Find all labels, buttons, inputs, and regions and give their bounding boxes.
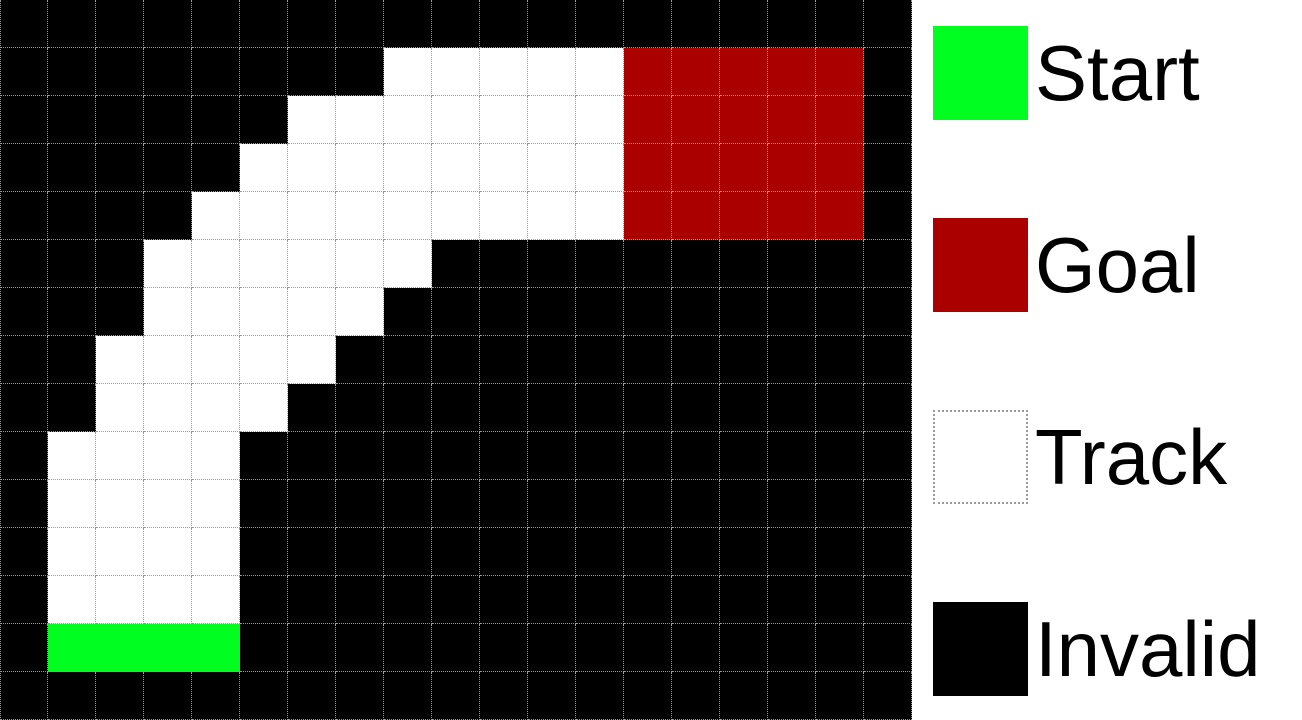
- grid-cell-invalid: [384, 288, 432, 336]
- grid-cell-invalid: [288, 384, 336, 432]
- grid-cell-invalid: [864, 192, 912, 240]
- grid-cell-invalid: [816, 288, 864, 336]
- grid-cell-invalid: [48, 0, 96, 48]
- grid-cell-invalid: [96, 0, 144, 48]
- grid-cell-invalid: [672, 672, 720, 720]
- grid-cell-goal: [816, 192, 864, 240]
- grid-cell-invalid: [240, 672, 288, 720]
- grid-cell-track: [240, 384, 288, 432]
- grid-cell-invalid: [864, 480, 912, 528]
- grid-cell-track: [576, 96, 624, 144]
- grid-cell-invalid: [576, 240, 624, 288]
- grid-cell-invalid: [720, 432, 768, 480]
- grid-cell-track: [240, 336, 288, 384]
- grid-cell-invalid: [288, 432, 336, 480]
- grid-cell-invalid: [576, 432, 624, 480]
- grid-cell-invalid: [672, 288, 720, 336]
- start-swatch: [933, 26, 1028, 120]
- grid-cell-invalid: [672, 240, 720, 288]
- grid-cell-invalid: [0, 288, 48, 336]
- goal-label: Goal: [1035, 226, 1200, 304]
- grid-cell-invalid: [384, 528, 432, 576]
- grid-cell-invalid: [288, 48, 336, 96]
- grid-cell-invalid: [720, 384, 768, 432]
- grid-cell-track: [480, 96, 528, 144]
- grid-cell-invalid: [672, 480, 720, 528]
- grid-cell-invalid: [528, 624, 576, 672]
- grid-cell-track: [96, 576, 144, 624]
- grid-cell-invalid: [336, 0, 384, 48]
- grid-cell-invalid: [48, 96, 96, 144]
- grid-cell-invalid: [432, 624, 480, 672]
- grid-cell-invalid: [480, 624, 528, 672]
- grid-cell-track: [48, 432, 96, 480]
- grid-cell-invalid: [288, 0, 336, 48]
- grid-cell-invalid: [0, 384, 48, 432]
- grid-cell-track: [192, 528, 240, 576]
- grid-cell-track: [576, 192, 624, 240]
- grid-cell-invalid: [816, 672, 864, 720]
- grid-cell-invalid: [336, 624, 384, 672]
- grid-cell-invalid: [768, 240, 816, 288]
- grid-cell-invalid: [0, 480, 48, 528]
- grid-cell-invalid: [720, 336, 768, 384]
- grid-cell-goal: [624, 96, 672, 144]
- grid-cell-invalid: [48, 192, 96, 240]
- grid-cell-track: [528, 96, 576, 144]
- grid-cell-invalid: [0, 192, 48, 240]
- grid-cell-invalid: [336, 432, 384, 480]
- legend-item-goal: Goal: [933, 218, 1200, 312]
- grid-cell-goal: [720, 192, 768, 240]
- grid-cell-invalid: [720, 528, 768, 576]
- grid-cell-invalid: [240, 432, 288, 480]
- grid-cell-invalid: [144, 0, 192, 48]
- grid-cell-invalid: [864, 576, 912, 624]
- grid-cell-invalid: [240, 0, 288, 48]
- grid-cell-goal: [768, 144, 816, 192]
- grid-cell-track: [144, 432, 192, 480]
- grid-cell-invalid: [0, 432, 48, 480]
- grid-cell-invalid: [816, 0, 864, 48]
- grid-cell-invalid: [240, 528, 288, 576]
- grid-cell-track: [96, 384, 144, 432]
- grid-cell-invalid: [480, 240, 528, 288]
- grid-cell-invalid: [384, 624, 432, 672]
- grid-cell-track: [384, 144, 432, 192]
- grid-cell-invalid: [816, 432, 864, 480]
- grid-cell-invalid: [336, 384, 384, 432]
- grid-cell-track: [528, 192, 576, 240]
- grid-cell-invalid: [768, 576, 816, 624]
- grid-cell-track: [240, 288, 288, 336]
- grid-cell-invalid: [48, 48, 96, 96]
- grid-cell-invalid: [768, 432, 816, 480]
- grid-cell-invalid: [288, 528, 336, 576]
- grid-cell-track: [192, 192, 240, 240]
- grid-cell-invalid: [480, 576, 528, 624]
- grid-cell-track: [48, 480, 96, 528]
- grid-cell-invalid: [864, 528, 912, 576]
- grid-cell-track: [240, 192, 288, 240]
- grid-cell-invalid: [528, 672, 576, 720]
- grid-cell-invalid: [528, 528, 576, 576]
- grid-cell-invalid: [864, 624, 912, 672]
- grid-cell-invalid: [48, 336, 96, 384]
- grid-cell-invalid: [528, 384, 576, 432]
- grid-cell-invalid: [384, 0, 432, 48]
- grid-cell-goal: [672, 144, 720, 192]
- grid-cell-invalid: [432, 432, 480, 480]
- grid-cell-invalid: [624, 624, 672, 672]
- grid-cell-invalid: [624, 672, 672, 720]
- grid-cell-invalid: [336, 672, 384, 720]
- grid-cell-invalid: [480, 528, 528, 576]
- grid-cell-goal: [768, 96, 816, 144]
- grid-cell-invalid: [240, 96, 288, 144]
- legend-item-invalid: Invalid: [933, 602, 1260, 696]
- grid-cell-invalid: [480, 432, 528, 480]
- grid-cell-invalid: [672, 576, 720, 624]
- grid-cell-invalid: [624, 240, 672, 288]
- grid-cell-invalid: [192, 0, 240, 48]
- grid-cell-invalid: [336, 480, 384, 528]
- grid-cell-invalid: [432, 0, 480, 48]
- grid-cell-invalid: [480, 0, 528, 48]
- grid-cell-invalid: [336, 48, 384, 96]
- grid-cell-invalid: [432, 576, 480, 624]
- grid-cell-invalid: [768, 384, 816, 432]
- grid-cell-invalid: [192, 672, 240, 720]
- grid-cell-invalid: [672, 528, 720, 576]
- grid-cell-invalid: [432, 480, 480, 528]
- grid-cell-invalid: [432, 336, 480, 384]
- grid-cell-invalid: [384, 480, 432, 528]
- grid-cell-invalid: [144, 96, 192, 144]
- grid-cell-track: [144, 384, 192, 432]
- grid-cell-track: [192, 336, 240, 384]
- grid-cell-track: [432, 192, 480, 240]
- grid-cell-invalid: [864, 96, 912, 144]
- grid-cell-invalid: [336, 576, 384, 624]
- grid-cell-invalid: [432, 528, 480, 576]
- grid-cell-invalid: [384, 576, 432, 624]
- grid-cell-invalid: [624, 432, 672, 480]
- grid-cell-invalid: [768, 528, 816, 576]
- grid-cell-invalid: [816, 624, 864, 672]
- grid-cell-invalid: [288, 672, 336, 720]
- grid-cell-invalid: [48, 384, 96, 432]
- grid-cell-invalid: [672, 336, 720, 384]
- grid-cell-invalid: [192, 96, 240, 144]
- goal-swatch: [933, 218, 1028, 312]
- grid-cell-track: [528, 144, 576, 192]
- grid-cell-invalid: [432, 288, 480, 336]
- grid-cell-invalid: [576, 576, 624, 624]
- grid-cell-track: [384, 240, 432, 288]
- grid-cell-invalid: [864, 672, 912, 720]
- grid-cell-track: [384, 96, 432, 144]
- grid-cell-track: [432, 144, 480, 192]
- grid-cell-invalid: [768, 624, 816, 672]
- grid-cell-invalid: [96, 288, 144, 336]
- grid-cell-invalid: [720, 0, 768, 48]
- grid-cell-track: [384, 48, 432, 96]
- grid-cell-invalid: [384, 432, 432, 480]
- grid-cell-track: [480, 192, 528, 240]
- racetrack-figure: Start Goal Track Invalid: [0, 0, 1302, 720]
- grid-cell-invalid: [768, 0, 816, 48]
- grid-cell-invalid: [864, 336, 912, 384]
- grid-cell-start: [192, 624, 240, 672]
- grid-cell-invalid: [432, 384, 480, 432]
- grid-cell-track: [288, 144, 336, 192]
- grid-cell-invalid: [192, 144, 240, 192]
- grid-cell-track: [288, 192, 336, 240]
- grid-cell-invalid: [816, 576, 864, 624]
- grid-cell-track: [144, 528, 192, 576]
- grid-cell-start: [48, 624, 96, 672]
- grid-cell-invalid: [720, 480, 768, 528]
- grid-cell-invalid: [576, 528, 624, 576]
- grid-cell-goal: [624, 192, 672, 240]
- grid-cell-invalid: [720, 672, 768, 720]
- grid-cell-invalid: [336, 336, 384, 384]
- grid-cell-invalid: [96, 48, 144, 96]
- grid-cell-goal: [672, 192, 720, 240]
- grid-cell-invalid: [288, 624, 336, 672]
- grid-cell-invalid: [528, 576, 576, 624]
- grid-cell-track: [192, 240, 240, 288]
- grid-cell-goal: [816, 48, 864, 96]
- grid-cell-invalid: [816, 480, 864, 528]
- grid-cell-track: [528, 48, 576, 96]
- grid-cell-invalid: [624, 384, 672, 432]
- grid-cell-invalid: [144, 192, 192, 240]
- grid-cell-invalid: [336, 528, 384, 576]
- grid-cell-track: [192, 480, 240, 528]
- grid-cell-invalid: [816, 528, 864, 576]
- grid-cell-invalid: [672, 624, 720, 672]
- grid-cell-track: [144, 480, 192, 528]
- grid-cell-invalid: [768, 480, 816, 528]
- grid-cell-invalid: [240, 624, 288, 672]
- grid-cell-track: [240, 240, 288, 288]
- grid-cell-invalid: [624, 336, 672, 384]
- grid-cell-invalid: [48, 288, 96, 336]
- grid-cell-invalid: [720, 240, 768, 288]
- grid-cell-track: [96, 480, 144, 528]
- grid-cell-invalid: [480, 672, 528, 720]
- grid-cell-track: [480, 144, 528, 192]
- grid-cell-invalid: [624, 480, 672, 528]
- grid-cell-track: [96, 432, 144, 480]
- grid-cell-invalid: [0, 48, 48, 96]
- grid-cell-invalid: [432, 672, 480, 720]
- track-label: Track: [1035, 418, 1227, 496]
- grid-cell-track: [144, 576, 192, 624]
- grid-cell-track: [240, 144, 288, 192]
- grid-cell-invalid: [816, 384, 864, 432]
- grid-cell-invalid: [528, 0, 576, 48]
- grid-cell-invalid: [48, 144, 96, 192]
- grid-cell-goal: [720, 48, 768, 96]
- grid-cell-track: [96, 336, 144, 384]
- grid-cell-track: [192, 432, 240, 480]
- grid-cell-goal: [624, 144, 672, 192]
- grid-cell-invalid: [576, 672, 624, 720]
- grid-cell-invalid: [192, 48, 240, 96]
- grid-cell-track: [576, 144, 624, 192]
- grid-cell-invalid: [768, 336, 816, 384]
- grid-cell-invalid: [384, 336, 432, 384]
- grid-cell-invalid: [576, 336, 624, 384]
- grid-cell-track: [192, 288, 240, 336]
- grid-cell-invalid: [0, 96, 48, 144]
- legend-item-start: Start: [933, 26, 1200, 120]
- grid-cell-invalid: [480, 384, 528, 432]
- grid-cell-invalid: [672, 0, 720, 48]
- grid-cell-track: [336, 144, 384, 192]
- grid-cell-goal: [672, 48, 720, 96]
- invalid-swatch: [933, 602, 1028, 696]
- grid-cell-invalid: [0, 624, 48, 672]
- grid-cell-invalid: [576, 0, 624, 48]
- grid-cell-track: [336, 192, 384, 240]
- grid-cell-invalid: [528, 432, 576, 480]
- grid-cell-track: [336, 96, 384, 144]
- grid-cell-invalid: [288, 576, 336, 624]
- grid-cell-invalid: [240, 48, 288, 96]
- grid-cell-invalid: [144, 144, 192, 192]
- grid-cell-invalid: [864, 144, 912, 192]
- grid-cell-invalid: [0, 576, 48, 624]
- grid-cell-track: [384, 192, 432, 240]
- grid-cell-track: [432, 96, 480, 144]
- grid-cell-invalid: [624, 576, 672, 624]
- grid-cell-invalid: [816, 240, 864, 288]
- grid-cell-invalid: [432, 240, 480, 288]
- grid-cell-invalid: [0, 240, 48, 288]
- grid-cell-invalid: [576, 480, 624, 528]
- grid-cell-start: [144, 624, 192, 672]
- grid-cell-goal: [720, 144, 768, 192]
- grid-cell-track: [144, 336, 192, 384]
- grid-cell-invalid: [240, 480, 288, 528]
- track-swatch: [933, 410, 1028, 504]
- grid-cell-invalid: [768, 672, 816, 720]
- grid-cell-invalid: [576, 384, 624, 432]
- grid-cell-invalid: [240, 576, 288, 624]
- grid-cell-invalid: [624, 0, 672, 48]
- grid-cell-track: [288, 96, 336, 144]
- grid-cell-invalid: [720, 624, 768, 672]
- grid-cell-invalid: [816, 336, 864, 384]
- grid-cell-invalid: [720, 576, 768, 624]
- grid-cell-invalid: [0, 144, 48, 192]
- grid-cell-track: [576, 48, 624, 96]
- grid-cell-track: [288, 240, 336, 288]
- grid-cell-invalid: [96, 192, 144, 240]
- grid-cell-invalid: [576, 624, 624, 672]
- grid-cell-invalid: [0, 336, 48, 384]
- grid-cell-invalid: [864, 384, 912, 432]
- grid-cell-track: [480, 48, 528, 96]
- grid-cell-invalid: [384, 384, 432, 432]
- legend-item-track: Track: [933, 410, 1227, 504]
- grid-cell-track: [432, 48, 480, 96]
- grid-cell-goal: [768, 48, 816, 96]
- grid-cell-invalid: [672, 432, 720, 480]
- grid-cell-invalid: [528, 288, 576, 336]
- grid-cell-invalid: [96, 96, 144, 144]
- grid-cell-invalid: [528, 336, 576, 384]
- grid-cell-goal: [816, 144, 864, 192]
- grid-cell-track: [288, 336, 336, 384]
- grid-cell-track: [144, 288, 192, 336]
- grid-cell-invalid: [864, 432, 912, 480]
- grid-cell-goal: [624, 48, 672, 96]
- grid-cell-invalid: [288, 480, 336, 528]
- grid-cell-track: [48, 528, 96, 576]
- grid-cell-invalid: [864, 0, 912, 48]
- grid-cell-invalid: [576, 288, 624, 336]
- grid-cell-track: [336, 240, 384, 288]
- grid-cell-invalid: [864, 288, 912, 336]
- grid-cell-track: [48, 576, 96, 624]
- grid-cell-track: [336, 288, 384, 336]
- grid-cell-goal: [720, 96, 768, 144]
- grid-cell-invalid: [144, 48, 192, 96]
- grid-cell-invalid: [48, 240, 96, 288]
- grid-cell-invalid: [624, 288, 672, 336]
- start-label: Start: [1035, 34, 1200, 112]
- grid-cell-invalid: [528, 240, 576, 288]
- grid-cell-invalid: [864, 240, 912, 288]
- grid-cell-invalid: [0, 528, 48, 576]
- grid-cell-invalid: [768, 288, 816, 336]
- invalid-label: Invalid: [1035, 610, 1260, 688]
- grid-cell-track: [96, 528, 144, 576]
- legend-panel: Start Goal Track Invalid: [912, 0, 1302, 720]
- grid-cell-track: [144, 240, 192, 288]
- grid-cell-invalid: [96, 672, 144, 720]
- grid-cell-invalid: [384, 672, 432, 720]
- grid-cell-track: [192, 384, 240, 432]
- grid-cell-invalid: [144, 672, 192, 720]
- grid-cell-goal: [768, 192, 816, 240]
- grid-cell-invalid: [672, 384, 720, 432]
- grid-cell-invalid: [864, 48, 912, 96]
- grid-cell-invalid: [528, 480, 576, 528]
- grid-cell-track: [288, 288, 336, 336]
- grid-cell-invalid: [720, 288, 768, 336]
- grid-cell-goal: [816, 96, 864, 144]
- grid-cell-invalid: [0, 0, 48, 48]
- grid-cell-invalid: [0, 672, 48, 720]
- grid-cell-invalid: [96, 144, 144, 192]
- grid-cell-track: [192, 576, 240, 624]
- grid-cell-invalid: [48, 672, 96, 720]
- grid-cell-invalid: [480, 336, 528, 384]
- grid-cell-invalid: [96, 240, 144, 288]
- grid-cell-invalid: [480, 480, 528, 528]
- grid-cell-invalid: [624, 528, 672, 576]
- grid-cell-start: [96, 624, 144, 672]
- grid-cell-goal: [672, 96, 720, 144]
- racetrack-grid: [0, 0, 912, 720]
- grid-cell-invalid: [480, 288, 528, 336]
